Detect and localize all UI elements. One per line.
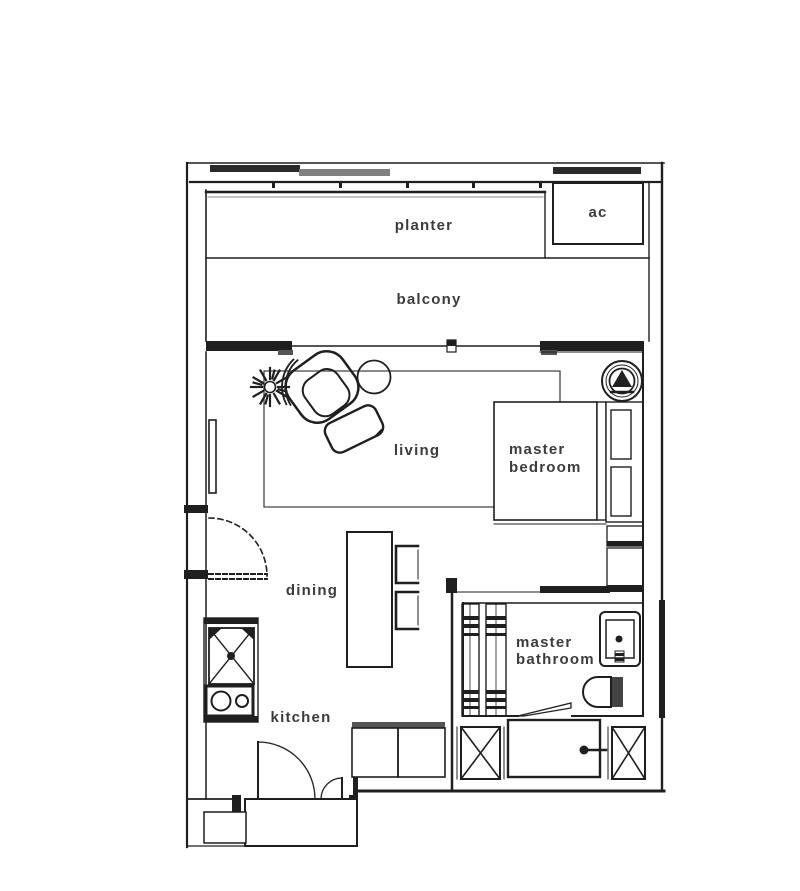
entry-step — [204, 812, 246, 843]
room-label-living: living — [357, 442, 477, 460]
bathroom-door — [518, 703, 571, 716]
chair — [396, 546, 418, 583]
entry-bench — [352, 722, 445, 777]
right-wall-thick-segment — [659, 600, 665, 718]
dining-chairs — [396, 546, 418, 629]
balcony-divider-wall — [206, 340, 644, 355]
room-label-master-bathroom: master bathroom — [516, 634, 611, 668]
wardrobe — [607, 526, 643, 592]
vestibule — [204, 799, 357, 846]
toilet-icon — [583, 677, 623, 707]
plant-icon — [251, 368, 289, 406]
service-shaft-left — [457, 727, 504, 779]
kitchen-sink-icon — [209, 628, 254, 684]
floor-plan: planter ac balcony living master bedroom… — [0, 0, 800, 891]
headboard — [597, 402, 606, 520]
side-table-icon — [358, 361, 391, 394]
room-label-kitchen: kitchen — [241, 709, 361, 727]
bathtub-icon — [508, 720, 606, 777]
ceiling-fan-icon — [602, 361, 642, 401]
shower-screen — [462, 604, 506, 716]
room-label-master-bedroom: master bedroom — [509, 441, 594, 477]
room-label-ac: ac — [558, 204, 638, 222]
service-shaft-right — [608, 727, 645, 779]
dashed-swing-door — [209, 518, 267, 579]
room-label-dining: dining — [252, 582, 372, 600]
chair — [396, 592, 418, 629]
room-label-planter: planter — [354, 217, 494, 235]
tv-icon — [209, 420, 216, 493]
toilet-tank — [611, 677, 623, 707]
room-label-balcony: balcony — [359, 291, 499, 309]
